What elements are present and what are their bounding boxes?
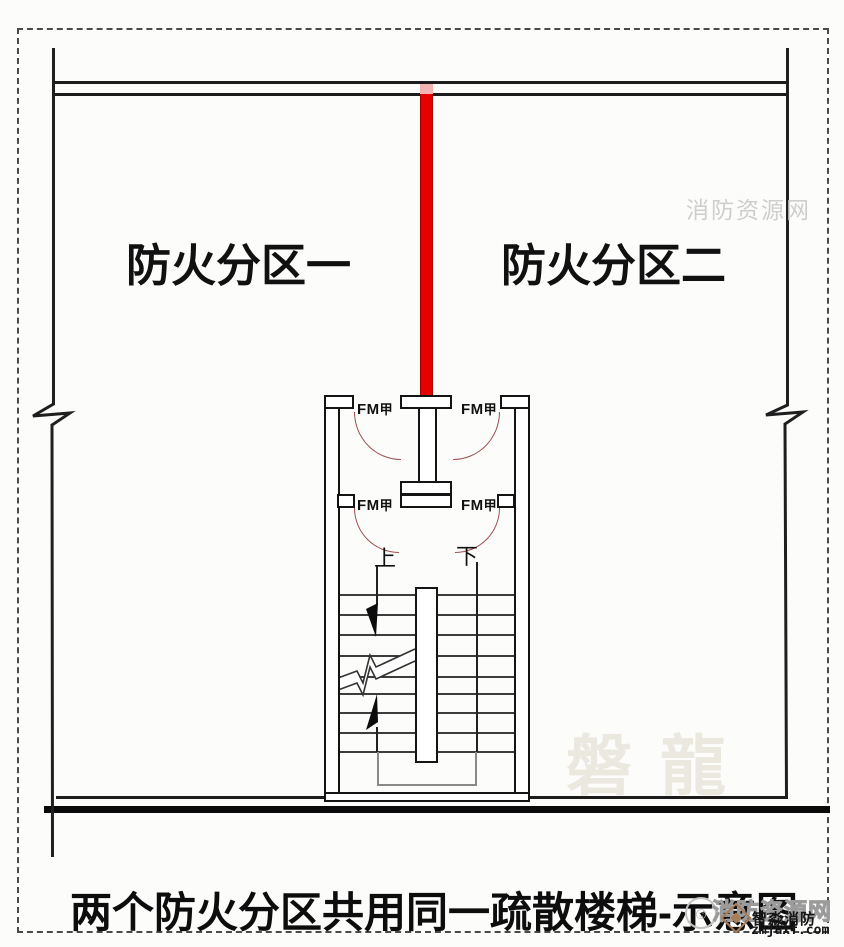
watermark-panlong: 磐龍	[566, 713, 754, 809]
watermark-top-right: 消防资源网	[686, 191, 811, 225]
fm-text: FM	[461, 401, 484, 418]
stairwell-top-wall-left-segment	[324, 395, 354, 409]
door-label-fm-bottom-left: FM甲	[357, 495, 393, 514]
fire-separation-wall	[420, 94, 434, 396]
stairwell-right-wall	[514, 395, 530, 801]
fm-text: FM	[357, 401, 380, 418]
zone-label-1: 防火分区一	[126, 229, 351, 294]
fm-text: FM	[461, 497, 484, 514]
vestibule-lower-wall-left-segment	[337, 494, 355, 508]
building-bottom-wall-left-segment	[56, 796, 324, 799]
jia-text: 甲	[484, 402, 498, 417]
stair-stringer-rectangle	[415, 587, 438, 763]
door-label-fm-top-left: FM甲	[357, 399, 393, 418]
watermark-site-url: zmjaxf.com	[751, 923, 829, 938]
jia-text: 甲	[484, 498, 498, 513]
jia-text: 甲	[380, 402, 394, 417]
jia-text: 甲	[380, 498, 394, 513]
stairwell-bottom-wall	[324, 792, 530, 802]
floor-plan-diagram: 防火分区一 防火分区二 FM甲 FM甲 FM甲 FM甲 上 下 两个防火分区共用…	[0, 0, 844, 947]
stair-up-label: 上	[374, 541, 396, 573]
stair-landing-outline	[377, 752, 477, 786]
zone-label-2: 防火分区二	[501, 229, 726, 294]
fm-text: FM	[357, 497, 380, 514]
vestibule-lower-wall-middle-segment	[400, 494, 452, 508]
vestibule-center-column	[418, 407, 437, 483]
vestibule-lower-wall-right-segment	[497, 494, 515, 508]
stairwell-left-wall	[324, 395, 340, 801]
stairwell-top-wall-right-segment	[500, 395, 530, 409]
stair-down-label: 下	[456, 539, 478, 571]
fire-wall-top-tint	[420, 84, 434, 94]
door-label-fm-top-right: FM甲	[461, 399, 497, 418]
vestibule-center-column-cap	[400, 481, 452, 495]
door-label-fm-bottom-right: FM甲	[461, 495, 497, 514]
